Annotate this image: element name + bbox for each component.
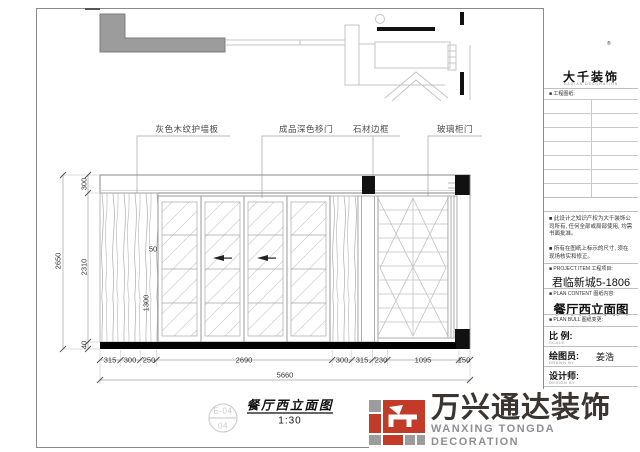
base-block-right (455, 329, 470, 349)
dim-bottom-1095: 1095 (415, 356, 432, 365)
dim-bottom-150: 150 (458, 356, 471, 365)
callout-stone-frame: 石材边框 (353, 123, 389, 135)
company-name-en: WANXING TONGDA DECORATION (431, 423, 640, 449)
company-name: 万兴通达装饰 (431, 393, 640, 423)
dim-left-300: 300 (80, 178, 89, 191)
brand-name-en: DAQIAN DECORATION (544, 82, 638, 86)
dim-inner-1300: 1300 (142, 295, 151, 312)
dim-bottom-315: 315 (104, 356, 117, 365)
dimension-note: ■ 所有在图纸上标示的尺寸, 须在现场核实和修正。 (549, 246, 633, 261)
skirting (100, 342, 456, 349)
right-jamb (448, 175, 470, 349)
company-logo: 万兴通达装饰 WANXING TONGDA DECORATION (369, 389, 640, 452)
dim-bottom-total: 5660 (275, 371, 296, 380)
callout-sliding-door: 成品深色移门 (279, 123, 333, 135)
dim-left-2310: 2310 (80, 259, 89, 276)
drawing-sheet: 灰色木纹护墙板 成品深色移门 石材边框 玻璃柜门 2650 300 2310 4… (0, 0, 640, 452)
detail-ref-top: E-04 (214, 407, 233, 416)
detail-ref-bottom: 04 (218, 422, 228, 431)
beam-section-left (362, 176, 375, 194)
dim-left-total: 2650 (54, 253, 63, 270)
wood-panel-right (330, 196, 358, 342)
copyright-note: ■ 此设计之知识产权为大千装饰公司所有, 任何全部或局部使用, 均需书面批准。 (549, 216, 633, 239)
title-block: 大千 ® 大千装饰 DAQIAN DECORATION ■ 工程图纸: ■ 此设… (543, 8, 638, 446)
dim-inner-50: 50 (149, 245, 157, 254)
glass-cabinet (378, 196, 448, 338)
plan-change-label: ■ PLAN BULL 图纸变更: (549, 316, 603, 323)
drawing-scale: 1:30 (278, 416, 301, 427)
registered-mark: ® (607, 41, 611, 47)
slide-direction-arrows (213, 255, 276, 261)
wood-panel-left (100, 193, 158, 342)
callout-wood-panel: 灰色木纹护墙板 (155, 123, 218, 135)
dim-bottom-230: 230 (375, 356, 388, 365)
dim-bottom-2690: 2690 (236, 356, 253, 365)
elevation (100, 175, 470, 349)
sliding-door (158, 196, 330, 342)
dim-left-40: 40 (80, 341, 89, 349)
dim-bottom-300b: 300 (336, 356, 349, 365)
dim-bottom-250: 250 (143, 356, 156, 365)
company-logo-icon (369, 395, 425, 447)
beam-section-right (455, 175, 470, 195)
callout-leaders (137, 136, 482, 198)
drawing-title: 餐厅西立面图 (246, 395, 333, 414)
callout-glass-cabinet: 玻璃柜门 (437, 123, 473, 135)
dim-bottom-300: 300 (124, 356, 137, 365)
plan-content-label: ■ PLAN CONTENT 图纸内容: (549, 290, 615, 297)
project-label: ■ PROJECT ITEM 工程项目: (549, 265, 613, 272)
dim-bottom-315b: 315 (356, 356, 369, 365)
drawing-list-label: ■ 工程图纸: (549, 90, 575, 97)
plan-fragment (85, 9, 470, 101)
stone-frame (358, 176, 378, 342)
